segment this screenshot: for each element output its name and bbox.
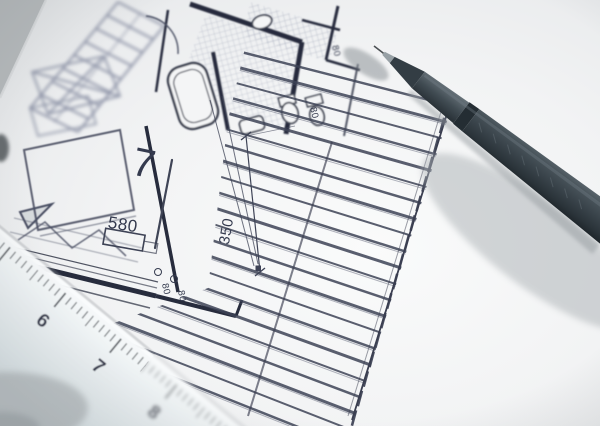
photo-canvas: 7 580 350 80 80 80 80 bbox=[0, 0, 600, 426]
vignette bbox=[0, 0, 600, 426]
blueprint-photo: 7 580 350 80 80 80 80 bbox=[0, 0, 600, 426]
